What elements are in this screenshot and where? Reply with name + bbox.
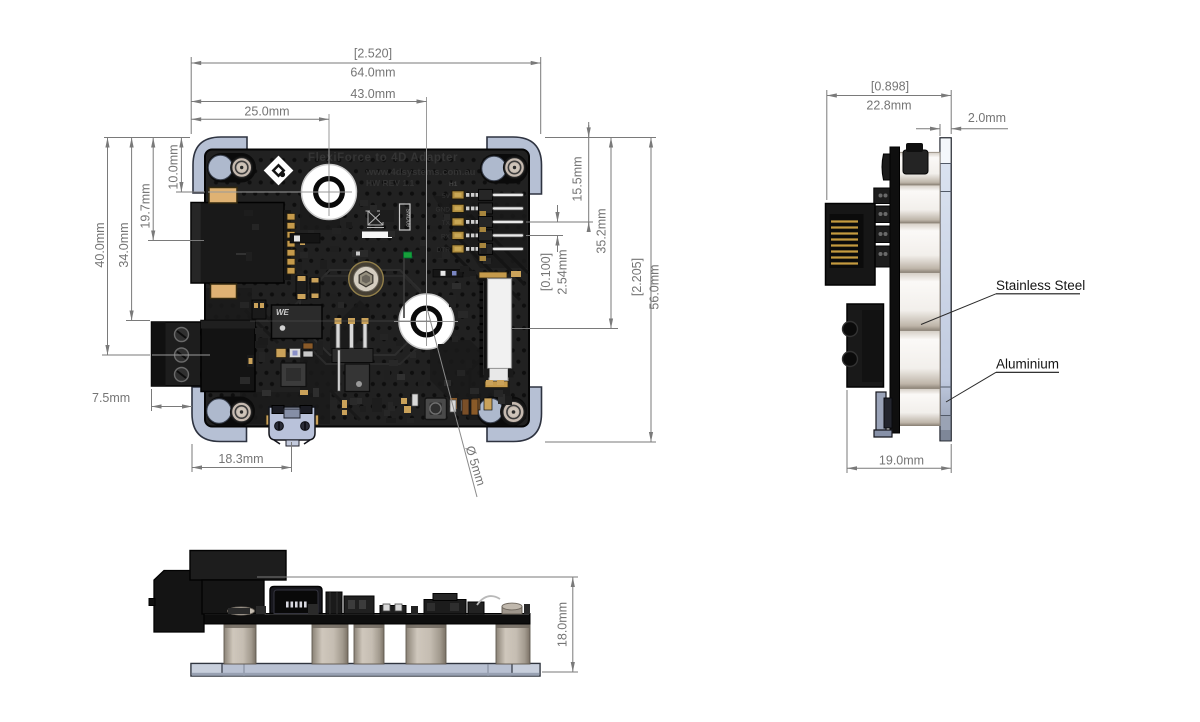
svg-text:22.8mm: 22.8mm xyxy=(866,99,911,113)
svg-text:RX: RX xyxy=(441,234,451,241)
svg-text:25.0mm: 25.0mm xyxy=(244,105,289,119)
svg-text:18.3mm: 18.3mm xyxy=(218,452,263,466)
svg-text:Aluminium: Aluminium xyxy=(996,357,1059,372)
svg-text:40.0mm: 40.0mm xyxy=(93,222,107,267)
svg-text:64.0mm: 64.0mm xyxy=(350,66,395,80)
svg-text:[2.520]: [2.520] xyxy=(354,47,392,61)
svg-text:10.0mm: 10.0mm xyxy=(167,144,181,189)
svg-text:[0.898]: [0.898] xyxy=(871,80,909,94)
svg-text:18.0mm: 18.0mm xyxy=(556,602,570,647)
svg-text:56.0mm: 56.0mm xyxy=(648,264,662,309)
svg-text:15.5mm: 15.5mm xyxy=(571,156,585,201)
svg-text:19.0mm: 19.0mm xyxy=(879,454,924,468)
svg-text:5V: 5V xyxy=(442,193,451,200)
svg-text:43.0mm: 43.0mm xyxy=(350,87,395,101)
svg-text:Stainless Steel: Stainless Steel xyxy=(996,278,1085,293)
svg-text:WE: WE xyxy=(276,308,290,317)
svg-text:[0.100]: [0.100] xyxy=(539,253,553,291)
svg-text:19.7mm: 19.7mm xyxy=(139,183,153,228)
svg-text:2.0mm: 2.0mm xyxy=(968,111,1006,125)
svg-text:HW REV 1.1: HW REV 1.1 xyxy=(366,178,414,188)
svg-text:[2.205]: [2.205] xyxy=(630,258,644,296)
svg-text:35.2mm: 35.2mm xyxy=(595,208,609,253)
svg-text:FlexiForce to 4D Adapter: FlexiForce to 4D Adapter xyxy=(308,152,458,164)
svg-text:2.54mm: 2.54mm xyxy=(556,249,570,294)
svg-text:SMD09: SMD09 xyxy=(405,209,411,227)
svg-text:GND: GND xyxy=(436,207,451,214)
svg-text:Ø 5mm: Ø 5mm xyxy=(463,444,488,487)
svg-text:34.0mm: 34.0mm xyxy=(117,222,131,267)
svg-text:TX: TX xyxy=(442,220,451,227)
svg-text:H1: H1 xyxy=(449,181,458,188)
svg-text:www.4dsystems.com.au: www.4dsystems.com.au xyxy=(365,167,476,178)
svg-text:7.5mm: 7.5mm xyxy=(92,391,130,405)
